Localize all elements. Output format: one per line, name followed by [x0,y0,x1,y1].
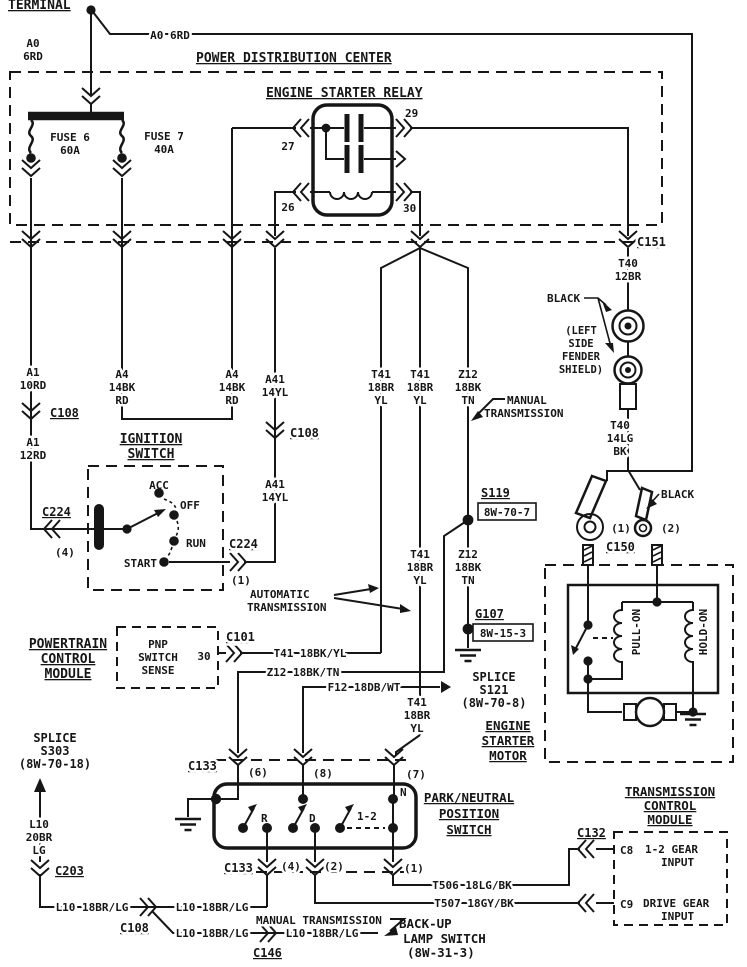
s119-reference: 8W-70-7 [484,506,530,519]
park-neutral-position-switch: PARK/NEUTRAL POSITION SWITCH R D 1-2 N [175,784,515,848]
t41-label-3c: YL [413,574,427,587]
t507-wire-label: T507 18GY/BK [434,897,514,910]
c133-pin2-label: (2) [324,860,344,873]
a41-wire-label-2: A41 [265,478,285,491]
ignition-title-2: SWITCH [128,447,175,462]
hold-on-coil-label: HOLD-ON [697,609,710,655]
a41-wire-label-1: A41 [265,373,285,386]
pnp-title-1: PARK/NEUTRAL [424,790,515,805]
connector-c150-label: C150 [606,540,635,554]
engine-starter-motor-title: ENGINE STARTER MOTOR [482,718,535,763]
ground-g107-label: G107 [475,607,504,621]
c224-pin4-label: (4) [55,546,75,559]
pnp-title-2: POSITION [439,806,499,821]
ignition-switch: IGNITION SWITCH ACC OFF RUN START C224 (… [88,432,275,590]
connector-c101-label: C101 [226,630,255,644]
z12-label-2c: TN [461,574,474,587]
t41-label-4a: T41 [407,696,427,709]
esm-title-1: ENGINE [485,718,530,733]
tcm-c8-pin: C8 [620,844,633,857]
relay-pin30-label: 30 [403,202,416,215]
fuse7-name: FUSE 7 [144,130,184,143]
t40b-wire-label-b: 14LG [607,432,634,445]
t41-pcm-wire-label: T41 18BK/YL [274,647,347,660]
pcm-title-1: POWERTRAIN [29,637,107,652]
manual-trans-callout-bottom: MANUAL TRANSMISSION [256,914,382,927]
t41-label-2b: 18BR [407,381,434,394]
powertrain-control-module: POWERTRAIN CONTROL MODULE PNP SWITCH SEN… [29,627,451,753]
tcm-title-2: CONTROL [644,798,697,813]
pull-on-coil-label: PULL-ON [630,609,643,655]
fender-shield-label-3: FENDER [562,351,601,363]
s303-label-3: (8W-70-18) [19,757,91,771]
connector-c224-label: C224 [42,505,71,519]
auto-trans-label-1: AUTOMATIC [250,588,310,601]
splice-s121: SPLICE S121 (8W-70-8) [461,670,526,710]
fender-shield-label-1: (LEFT [565,325,597,337]
starter-motor-assembly: PULL-ON HOLD-ON [545,545,733,762]
tcm-c8-function-1: 1-2 GEAR [645,843,698,856]
starter-feed-column: T40 12BR BLACK (LEFT SIDE FENDER SHIELD)… [547,248,694,554]
s121-label-2: S121 [480,683,509,697]
l10-wire-label-a: L10 [29,818,49,831]
t506-wire-label: T506 18LG/BK [432,879,512,892]
bulkhead-connector-row: C151 [10,231,666,249]
l10-row2-label-2: L10 18BR/LG [286,927,359,940]
connector-c132-label: C132 [577,826,606,840]
z12-label-2b: 18BK [455,561,482,574]
t41-label-3b: 18BR [407,561,434,574]
l10-wire-label-b: 20BR [26,831,53,844]
t41-label-4b: 18BR [404,709,431,722]
a4-color-label-2: RD [225,394,239,407]
pnp-title-3: SWITCH [446,822,491,837]
connector-c108c-label: C108 [120,921,149,935]
a0-wire-label-v2: 6RD [23,50,43,63]
c133-top-connector: C133 (6) (8) (7) [188,735,426,799]
g107-reference: 8W-15-3 [480,627,526,640]
z12-label-1a: Z12 [458,368,478,381]
ignition-title-1: IGNITION [120,432,183,447]
t41-label-1c: YL [374,394,388,407]
fender-shield-label-4: SHIELD) [559,364,603,376]
t41-label-1a: T41 [371,368,391,381]
t40b-wire-label-c: BK [613,445,627,458]
esm-title-2: STARTER [482,733,535,748]
tcm-title-1: TRANSMISSION [625,784,715,799]
ground-symbol-g107 [455,650,481,661]
ignition-off-label: OFF [180,499,200,512]
c133-pin8-label: (8) [313,767,333,780]
relay-pin26-label: 26 [281,201,295,214]
a0-wire-label: A0 6RD [150,29,190,42]
a41-start-wire: A41 14YL C108 A41 14YL [245,248,319,562]
connector-c133-top-label: C133 [188,759,217,773]
l10-wire-label-c: LG [32,844,46,857]
a0-wire-label-v1: A0 [26,37,39,50]
a4-color-label-1: RD [115,394,129,407]
pcm-title-2: CONTROL [41,652,96,667]
f12-wire-label: F12 18DB/WT [328,681,401,694]
z12-label-2a: Z12 [458,548,478,561]
pcm-pin30-label: 30 [197,650,210,663]
l10-row1-label-2: L10 18BR/LG [176,901,249,914]
connector-c108b-label: C108 [290,426,319,440]
a41-gauge-label-1: 14YL [262,386,289,399]
fuse6-rating: 60A [60,144,80,157]
a1-wire-label: A1 [26,366,40,379]
terminal-2-label: (2) [661,522,681,535]
ignition-run-label: RUN [186,537,206,550]
auto-trans-label-2: TRANSMISSION [247,601,326,614]
relay-pin29-label: 29 [405,107,418,120]
pnp-r-label: R [261,812,268,825]
a41-gauge-label-2: 14YL [262,491,289,504]
tcm-c9-function-1: DRIVE GEAR [643,897,710,910]
z12-pcm-wire-label: Z12 18BK/TN [267,666,340,679]
pnp-sense-label-1: PNP [148,638,168,651]
starting-system-wiring-diagram: TERMINAL A0 6RD A0 6RD POWER DISTRIBUTIO… [0,0,747,967]
t40-wire-label-b: 12BR [615,270,642,283]
a1b-wire-label: A1 [26,436,40,449]
a1b-gauge-label: 12RD [20,449,47,462]
s303-label-2: S303 [41,744,70,758]
backup-lamp-label-2: LAMP SWITCH [403,931,486,946]
t41-label-1b: 18BR [368,381,395,394]
z12-label-1b: 18BK [455,381,482,394]
engine-starter-relay: ENGINE STARTER RELAY 27 29 26 30 [232,86,628,236]
c133-pin6-label: (6) [248,766,268,779]
a1-ignition-feed: A1 10RD C108 A1 12RD C224 (4) [20,178,94,559]
pnp-sense-label-2: SWITCH [138,651,178,664]
fender-shield-label-2: SIDE [568,338,593,350]
t41-label-2a: T41 [410,368,430,381]
pnp-n-label: N [400,786,407,799]
manual-trans-label-1: MANUAL [507,394,547,407]
transmission-control-module: TRANSMISSION CONTROL MODULE C132 C8 1-2 … [577,784,727,925]
pnp-d-label: D [309,812,316,825]
ignition-acc-label: ACC [149,479,169,492]
relay-pin27-label: 27 [281,140,294,153]
a4-wire-label-2: A4 [225,368,239,381]
g107-ground: G107 8W-15-3 [455,607,533,661]
tcm-c9-function-2: INPUT [661,910,694,923]
backup-lamp-label-1: BACK-UP [399,916,452,931]
backup-lamp-label-3: (8W-31-3) [407,945,475,960]
z12-label-1c: TN [461,394,474,407]
s121-label-3: (8W-70-8) [461,696,526,710]
wiring-diagram-page: TERMINAL A0 6RD A0 6RD POWER DISTRIBUTIO… [0,0,747,967]
c133-pin1-label: (1) [404,862,424,875]
a4-gauge-label-2: 14BK [219,381,246,394]
connector-c151-label: C151 [637,235,666,249]
s303-label-1: SPLICE [33,731,76,745]
a4-feed-wires: A4 14BK RD A4 14BK RD [109,128,246,419]
ignition-start-label: START [124,557,157,570]
t40b-wire-label-a: T40 [610,419,630,432]
t41-label-4c: YL [410,722,424,735]
a1-gauge-label: 10RD [20,379,47,392]
c224-pin1-label: (1) [231,574,251,587]
black-connector-label-2: BLACK [661,488,694,501]
ground-symbol-pnp [175,819,201,830]
pdc-title: POWER DISTRIBUTION CENTER [196,51,392,66]
pnp-1-2-label: 1-2 [357,810,377,823]
t41-label-2c: YL [413,394,427,407]
l10-row1-label-1: L10 18BR/LG [56,901,129,914]
pnp-sense-label-3: SENSE [141,664,174,677]
connector-c133-bottom-label: C133 [224,861,253,875]
fuse6-name: FUSE 6 [50,131,90,144]
l10-backup-lamp-circuit: L10 18BR/LG L10 18BR/LG C108 L10 18BR/LG… [56,898,486,960]
black-connector-label-1: BLACK [547,292,580,305]
fuse7-rating: 40A [154,143,174,156]
tcm-c9-pin: C9 [620,898,633,911]
a4-gauge-label-1: 14BK [109,381,136,394]
relay-title: ENGINE STARTER RELAY [266,86,423,101]
l10-row2-label-1: L10 18BR/LG [176,927,249,940]
t40-wire-label-a: T40 [618,257,638,270]
terminal-1-label: (1) [611,522,631,535]
s121-label-1: SPLICE [472,670,515,684]
tcm-c8-function-2: INPUT [661,856,694,869]
pcm-title-3: MODULE [45,667,92,682]
a4-wire-label-1: A4 [115,368,129,381]
terminal-label: TERMINAL [8,0,71,13]
c133-bottom-connector: C133 (4) (2) (1) T506 18LG/BK T507 18GY/… [224,828,580,910]
connector-c146-label: C146 [253,946,282,960]
esm-title-3: MOTOR [489,748,527,763]
c133-pin4-label: (4) [281,860,301,873]
splice-s119-label: S119 [481,486,510,500]
c133-pin7-label: (7) [406,768,426,781]
t41-label-3a: T41 [410,548,430,561]
connector-c108-label: C108 [50,406,79,420]
connector-c224b-label: C224 [229,537,258,551]
tcm-title-3: MODULE [647,812,692,827]
manual-trans-label-2: TRANSMISSION [484,407,563,420]
connector-c203-label: C203 [55,864,84,878]
